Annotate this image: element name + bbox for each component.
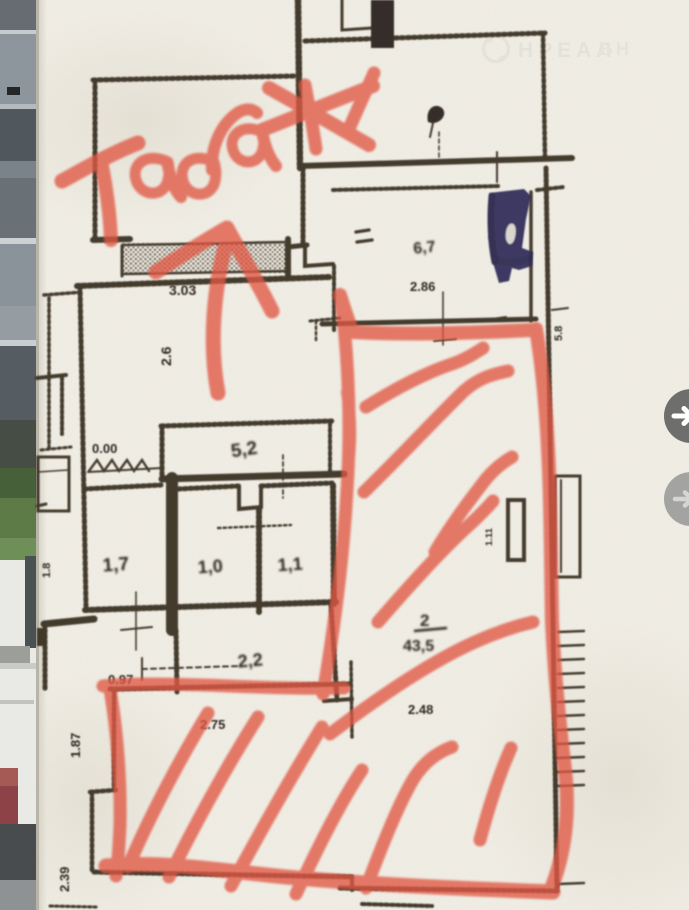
svg-text:43,5: 43,5 <box>403 638 434 655</box>
svg-text:2.86: 2.86 <box>410 279 435 294</box>
svg-text:2.6: 2.6 <box>158 346 174 366</box>
svg-text:2.48: 2.48 <box>408 702 433 717</box>
svg-text:2.39: 2.39 <box>57 867 72 892</box>
svg-text:5.8: 5.8 <box>553 326 565 341</box>
svg-text:1,7: 1,7 <box>102 554 130 577</box>
svg-text:1,1: 1,1 <box>277 554 303 576</box>
svg-text:1.11: 1.11 <box>484 527 495 546</box>
svg-text:1.87: 1.87 <box>68 733 83 758</box>
svg-text:3.03: 3.03 <box>169 282 196 298</box>
svg-text:1,0: 1,0 <box>197 556 223 578</box>
svg-text:0.00: 0.00 <box>92 441 117 456</box>
svg-text:1.8: 1.8 <box>41 563 53 578</box>
svg-text:ЬН: ЬН <box>600 39 632 59</box>
svg-text:2: 2 <box>420 611 429 630</box>
svg-text:6,7: 6,7 <box>412 238 436 257</box>
svg-text:5,2: 5,2 <box>230 438 259 462</box>
svg-text:2,2: 2,2 <box>237 649 264 671</box>
